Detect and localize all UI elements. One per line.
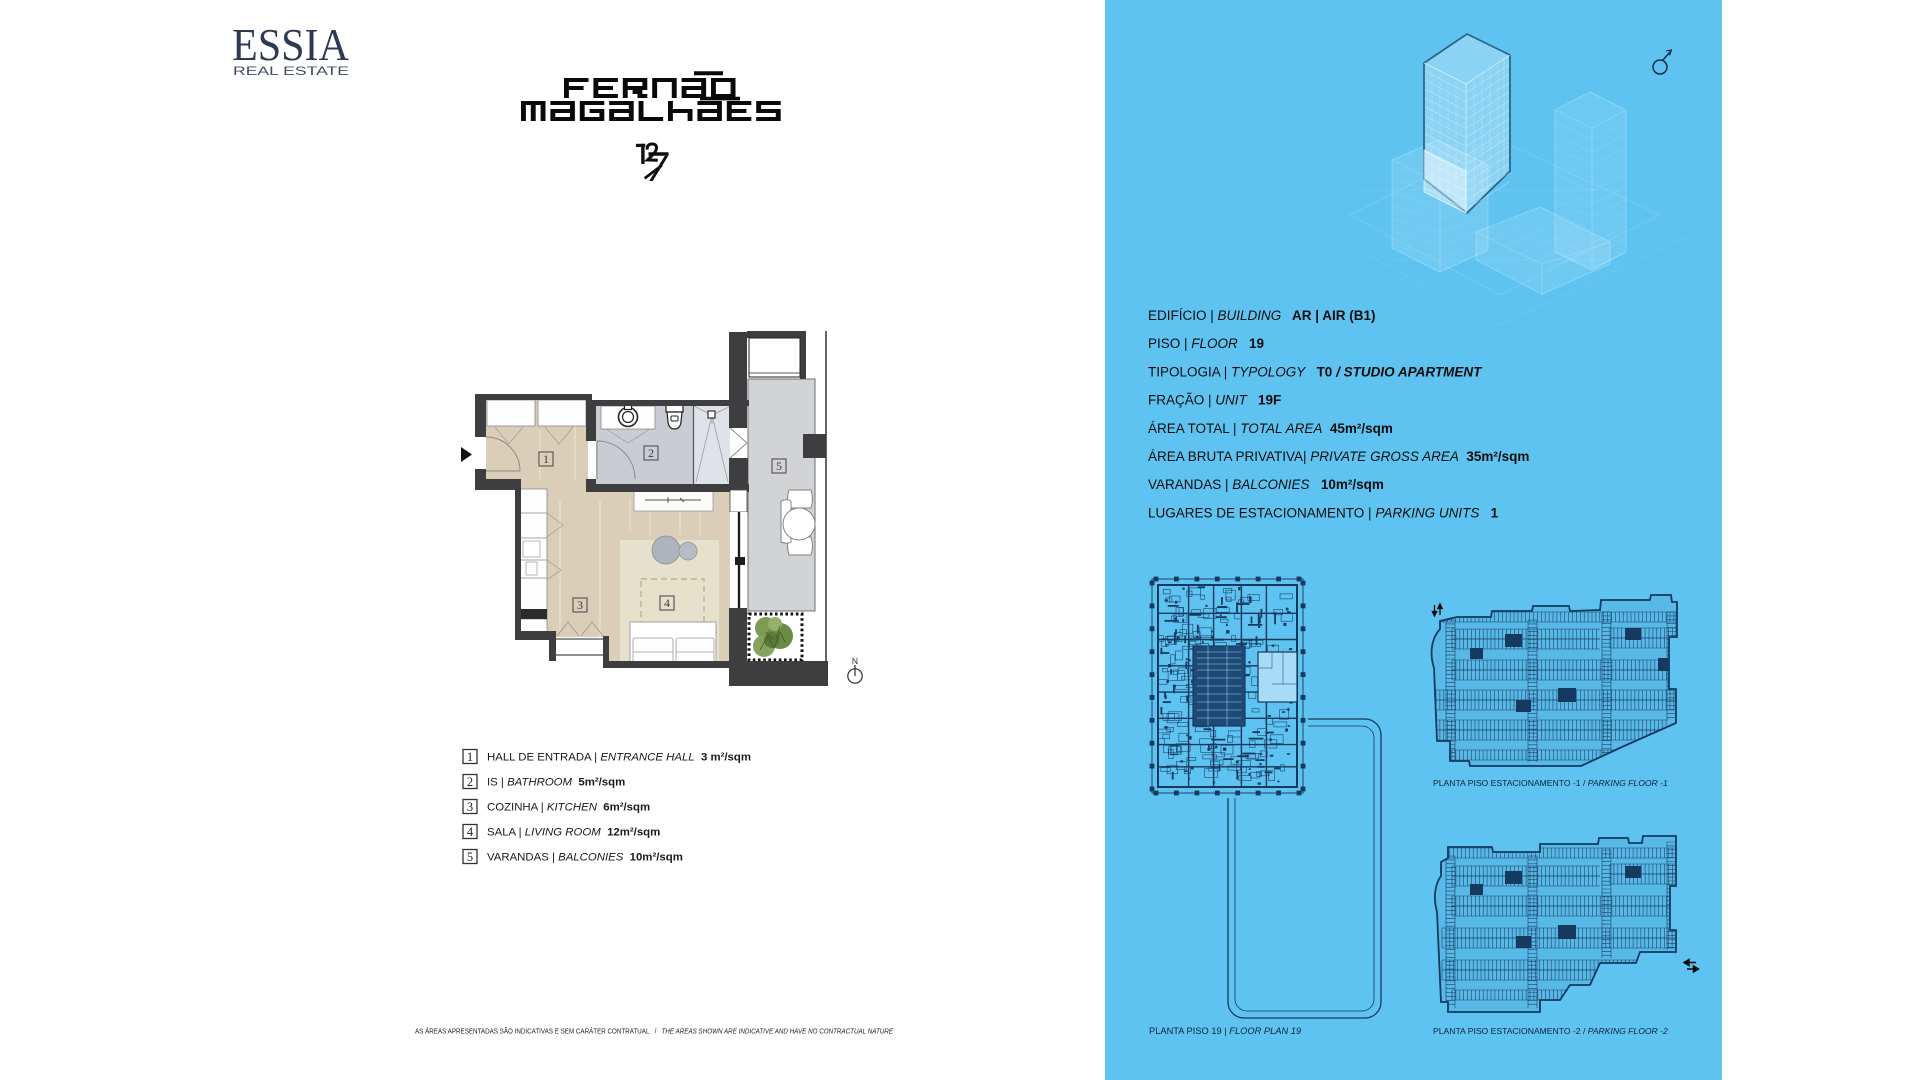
svg-text:4: 4 (467, 825, 474, 839)
svg-text:HALL DE ENTRADA | ENTRANCE HAL: HALL DE ENTRADA | ENTRANCE HALL 3 m²/sqm (487, 752, 751, 764)
svg-text:REAL ESTATE: REAL ESTATE (233, 66, 349, 78)
svg-text:AS ÁREAS APRESENTADAS SÃO INDI: AS ÁREAS APRESENTADAS SÃO INDICATIVAS E … (415, 1027, 893, 1036)
svg-text:VARANDAS | BALCONIES 10m²/sq: VARANDAS | BALCONIES 10m²/sqm (1148, 477, 1384, 492)
svg-text:EDIFÍCIO | BUILDING AR | AIR: EDIFÍCIO | BUILDING AR | AIR (B1) (1148, 308, 1376, 323)
svg-text:2: 2 (467, 775, 473, 789)
svg-text:SALA | LIVING ROOM 12m²/sqm: SALA | LIVING ROOM 12m²/sqm (487, 827, 660, 839)
svg-text:PLANTA PISO 19 | FLOOR PLAN 19: PLANTA PISO 19 | FLOOR PLAN 19 (1149, 1026, 1301, 1036)
svg-text:2: 2 (648, 446, 654, 460)
svg-text:PISO | FLOOR 19: PISO | FLOOR 19 (1148, 336, 1264, 351)
svg-text:ESSIA: ESSIA (232, 19, 349, 70)
svg-text:COZINHA | KITCHEN 6m²/sqm: COZINHA | KITCHEN 6m²/sqm (487, 802, 650, 814)
svg-text:1: 1 (467, 750, 473, 764)
svg-text:ÁREA TOTAL | TOTAL AREA 45m²/: ÁREA TOTAL | TOTAL AREA 45m²/sqm (1148, 421, 1393, 436)
svg-text:IS | BATHROOM 5m²/sqm: IS | BATHROOM 5m²/sqm (487, 777, 625, 789)
svg-text:LUGARES DE ESTACIONAMENTO | PA: LUGARES DE ESTACIONAMENTO | PARKING UNIT… (1148, 505, 1499, 520)
svg-text:VARANDAS | BALCONIES 10m²/sq: VARANDAS | BALCONIES 10m²/sqm (487, 852, 683, 864)
svg-text:4: 4 (664, 596, 670, 610)
svg-text:1: 1 (543, 452, 549, 466)
svg-text:PLANTA PISO ESTACIONAMENTO -1: PLANTA PISO ESTACIONAMENTO -1 / PARKING … (1433, 778, 1668, 788)
svg-text:ÁREA BRUTA PRIVATIVA| PRIVATE: ÁREA BRUTA PRIVATIVA| PRIVATE GROSS AREA… (1148, 449, 1529, 464)
svg-text:N: N (852, 656, 858, 666)
svg-text:5: 5 (467, 850, 473, 864)
svg-text:PLANTA PISO ESTACIONAMENTO -2: PLANTA PISO ESTACIONAMENTO -2 / PARKING … (1433, 1026, 1668, 1036)
svg-text:TIPOLOGIA | TYPOLOGY T0 / ST: TIPOLOGIA | TYPOLOGY T0 / STUDIO APARTME… (1148, 364, 1483, 379)
svg-text:5: 5 (776, 459, 782, 473)
svg-text:3: 3 (577, 598, 583, 612)
svg-text:FRAÇÃO | UNIT 19F: FRAÇÃO | UNIT 19F (1148, 393, 1281, 408)
svg-text:3: 3 (467, 800, 473, 814)
